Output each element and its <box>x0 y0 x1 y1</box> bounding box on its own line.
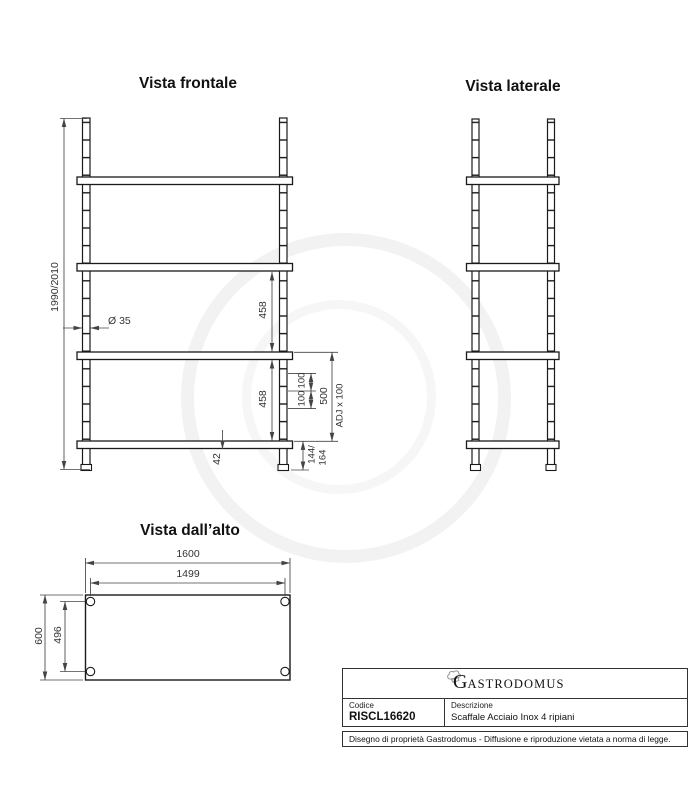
gastrodomus-logo: GASTRODOMUS <box>453 671 565 694</box>
technical-drawing-page: Vista frontale Vista laterale Vista dall… <box>0 0 700 800</box>
disclaimer-box: Disegno di proprietà Gastrodomus - Diffu… <box>342 731 688 747</box>
dim-total-height: 1990/2010 <box>49 254 61 320</box>
dim-shelf-thickness: 42 <box>211 450 223 468</box>
dim-shelf-gap-2: 458 <box>257 387 269 411</box>
front-view-title: Vista frontale <box>88 75 288 93</box>
top-view-title: Vista dall’alto <box>90 522 290 540</box>
description-cell: Descrizione Scaffale Acciaio Inox 4 ripi… <box>445 699 687 727</box>
top-view <box>86 595 291 680</box>
watermark-ring <box>181 233 511 563</box>
side-view <box>467 119 560 471</box>
front-view-dimensions <box>60 119 338 471</box>
dim-base-height-line2: 164 <box>318 446 329 470</box>
code-value: RISCL16620 <box>349 711 444 723</box>
dim-shelf-pitch: 500 <box>318 384 330 408</box>
title-block-info-row: Codice RISCL16620 Descrizione Scaffale A… <box>343 699 687 727</box>
description-value: Scaffale Acciaio Inox 4 ripiani <box>451 712 687 723</box>
front-view <box>77 118 293 471</box>
code-cell: Codice RISCL16620 <box>343 699 445 727</box>
dim-top-width-inner: 1499 <box>138 568 238 580</box>
dim-notch-pitch-2: 100 <box>297 388 308 410</box>
title-block: GASTRODOMUS Codice RISCL16620 Descrizion… <box>342 668 688 727</box>
code-label: Codice <box>349 701 444 710</box>
dim-top-depth-inner: 496 <box>52 622 64 648</box>
dim-top-depth: 600 <box>33 623 45 649</box>
brand-rest: ASTRODOMUS <box>467 677 564 691</box>
side-view-title: Vista laterale <box>413 78 613 96</box>
dim-shelf-gap-1: 458 <box>257 298 269 322</box>
dim-top-width: 1600 <box>138 548 238 560</box>
dim-base-height-line1: 144/ <box>307 443 318 467</box>
description-label: Descrizione <box>451 701 687 710</box>
brand-initial: G <box>453 671 467 693</box>
title-block-logo-row: GASTRODOMUS <box>343 669 687 699</box>
dim-adjust-step: ADJ x 100 <box>335 380 346 432</box>
dim-post-diameter: Ø 35 <box>108 315 131 327</box>
